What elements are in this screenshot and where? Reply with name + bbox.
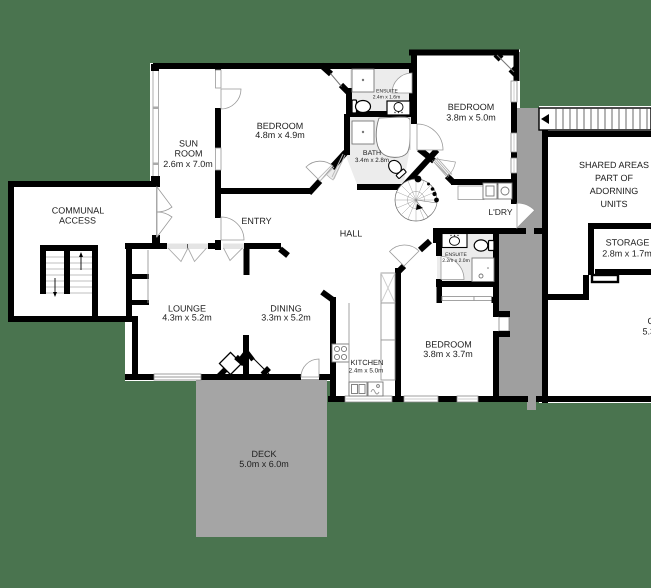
svg-text:2.8m x 1.7m: 2.8m x 1.7m	[602, 249, 651, 259]
svg-text:4.8m x 4.9m: 4.8m x 4.9m	[255, 130, 305, 140]
svg-text:ADORNING: ADORNING	[590, 186, 639, 196]
svg-text:3.4m x 2.8m: 3.4m x 2.8m	[355, 157, 389, 164]
svg-text:SHARED AREAS: SHARED AREAS	[579, 160, 649, 170]
svg-text:2.4m x 1.6m: 2.4m x 1.6m	[373, 95, 401, 101]
svg-text:ROOM: ROOM	[175, 149, 203, 159]
svg-text:PART OF: PART OF	[595, 173, 634, 183]
svg-text:3.8m x 3.7m: 3.8m x 3.7m	[423, 349, 473, 359]
svg-text:ENTRY: ENTRY	[241, 216, 271, 226]
svg-text:5.3m x 4.0m: 5.3m x 4.0m	[643, 327, 651, 337]
svg-text:2.4m x 5.0m: 2.4m x 5.0m	[349, 367, 384, 374]
svg-text:2.6m x 7.0m: 2.6m x 7.0m	[163, 159, 213, 169]
svg-text:COURT: COURT	[648, 316, 651, 326]
svg-text:BEDROOM: BEDROOM	[448, 102, 495, 112]
svg-text:5.0m x 6.0m: 5.0m x 6.0m	[239, 459, 289, 469]
svg-text:4.3m x 5.2m: 4.3m x 5.2m	[162, 313, 212, 323]
svg-text:SUN: SUN	[179, 138, 198, 148]
svg-text:BEDROOM: BEDROOM	[425, 339, 472, 349]
svg-text:KITCHEN: KITCHEN	[351, 358, 384, 367]
svg-text:HALL: HALL	[340, 229, 363, 239]
svg-text:UNITS: UNITS	[601, 199, 628, 209]
svg-text:2.2m x 2.0m: 2.2m x 2.0m	[442, 258, 470, 264]
svg-text:BATH: BATH	[363, 150, 381, 157]
svg-text:COMMUNAL: COMMUNAL	[52, 205, 105, 215]
svg-text:ACCESS: ACCESS	[59, 215, 96, 225]
svg-text:STORAGE: STORAGE	[606, 238, 650, 248]
svg-text:3.8m x 5.0m: 3.8m x 5.0m	[446, 112, 496, 122]
svg-text:L'DRY: L'DRY	[488, 207, 512, 217]
svg-text:DECK: DECK	[251, 449, 276, 459]
svg-text:3.3m x 5.2m: 3.3m x 5.2m	[261, 313, 311, 323]
